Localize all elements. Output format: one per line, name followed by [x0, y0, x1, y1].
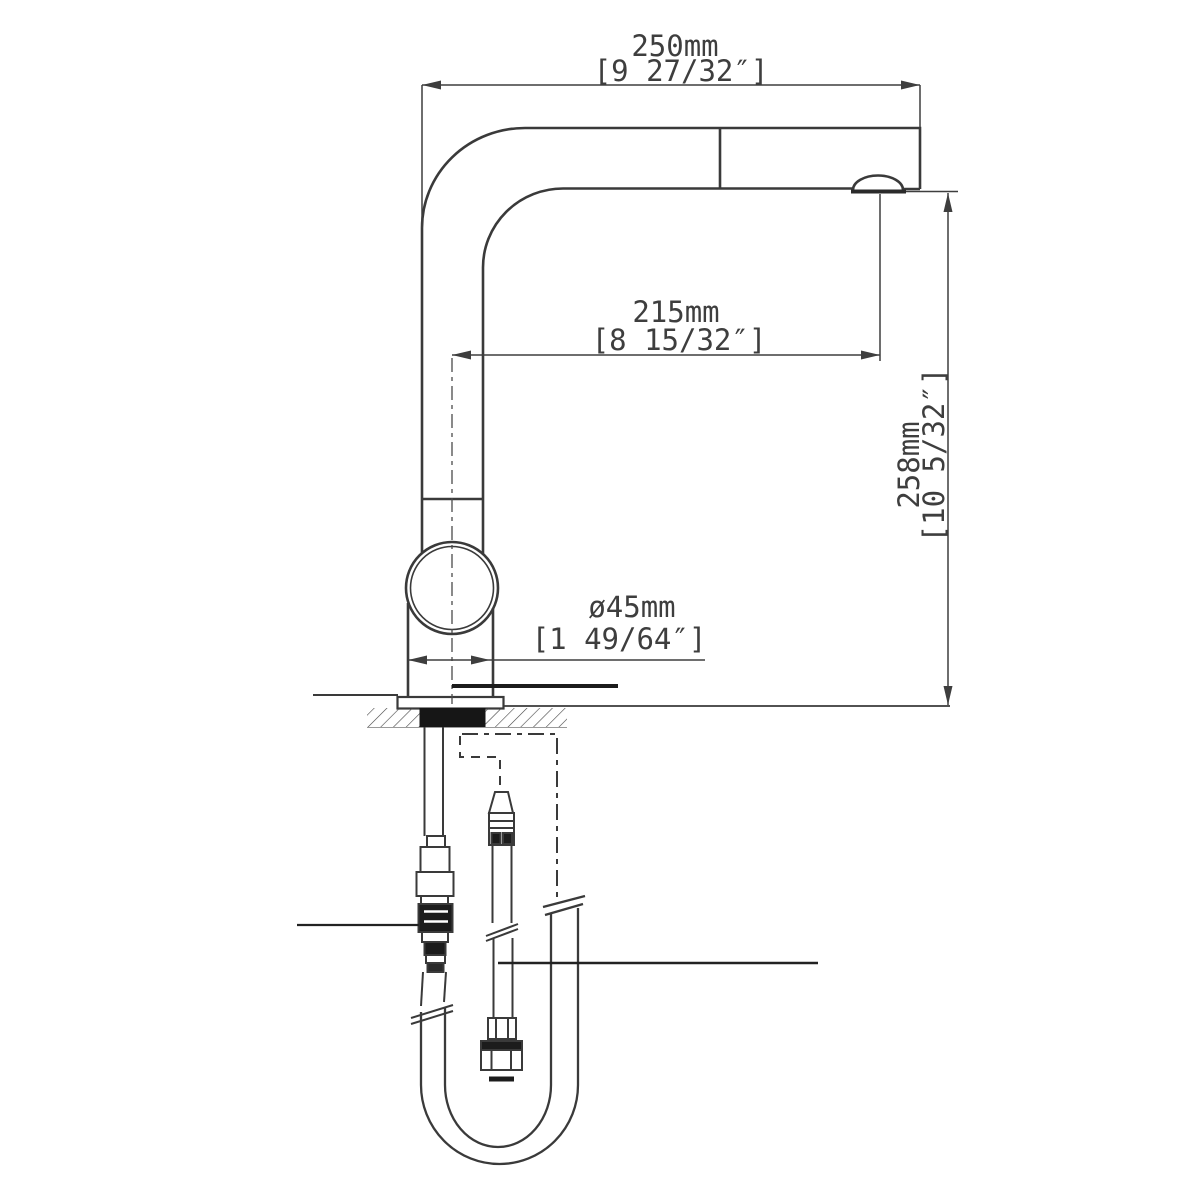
supply-fitting	[426, 955, 445, 963]
dimension-label-imperial: [9 27/32″]	[594, 54, 769, 88]
pullout-routing-dashed	[460, 736, 500, 792]
hose-break-mark	[411, 1005, 453, 1018]
u-hose-inner-arc	[445, 1085, 551, 1147]
supply-fitting-dark	[425, 942, 446, 955]
supply-fitting-dark	[428, 963, 444, 972]
arrowhead-right	[861, 351, 880, 360]
spout-inner-contour	[483, 189, 854, 555]
supply-fitting	[421, 847, 450, 872]
supply-fitting	[417, 872, 454, 896]
arrowhead-left	[422, 81, 441, 90]
dimension-label-imperial: [10 5/32″]	[917, 368, 951, 543]
countertop-hatch-left	[367, 708, 420, 727]
dimension-label-imperial: [1 49/64″]	[532, 622, 707, 656]
technical-drawing: 250mm [9 27/32″] 215mm [8 15/32″] 258mm …	[0, 0, 1200, 1200]
dimension-spout-height: 258mm [10 5/32″]	[892, 192, 958, 706]
supply-line-assembly	[411, 727, 454, 1024]
arrowhead-top	[944, 193, 953, 212]
supply-fitting	[427, 836, 445, 847]
supply-hose-edge	[421, 972, 423, 1006]
supply-check-valve-nut	[419, 904, 453, 932]
countertop-hatch-right	[485, 708, 567, 727]
pullout-hose-assembly	[460, 734, 557, 1079]
u-hose-outer-arc	[421, 1085, 578, 1164]
arrowhead-right	[901, 81, 920, 90]
dimension-label-imperial: [8 15/32″]	[592, 323, 767, 357]
arrowhead-left	[452, 351, 471, 360]
hose-break-mark	[411, 1011, 453, 1024]
arrowhead-bottom	[944, 686, 953, 705]
supply-fitting	[421, 896, 448, 904]
hose-connector-dark-band	[492, 833, 501, 844]
dimension-spout-reach: 215mm [8 15/32″]	[452, 194, 880, 361]
hose-end-nut-band	[481, 1041, 522, 1050]
base-flange	[398, 697, 504, 709]
arrowhead-right	[471, 656, 490, 665]
supply-fitting	[422, 932, 448, 942]
hose-end-collar	[488, 1018, 516, 1039]
aerator-dome	[853, 176, 903, 191]
mounting-seal	[420, 709, 485, 728]
hose-connector-tip	[489, 792, 513, 813]
faucet-dimension-drawing: 250mm [9 27/32″] 215mm [8 15/32″] 258mm …	[0, 0, 1200, 1200]
supply-hose-edge	[444, 972, 446, 1002]
hose-connector-dark-band	[503, 833, 512, 844]
dimension-label-metric: ø45mm	[588, 590, 675, 624]
arrowhead-left	[408, 656, 427, 665]
